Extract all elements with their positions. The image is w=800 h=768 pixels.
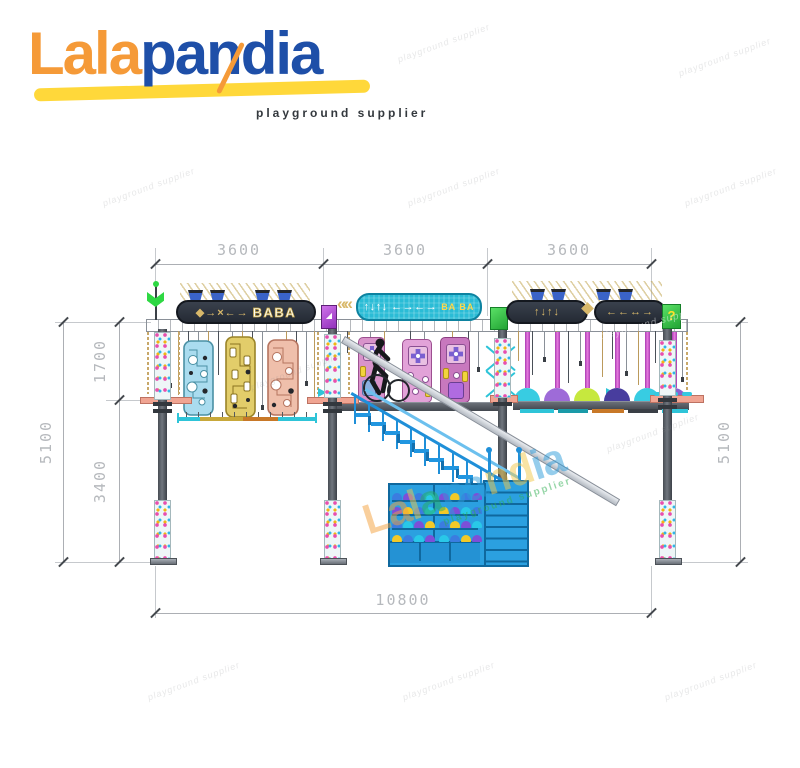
brand-logo: Lalapandia [28,24,321,84]
post-2-padding [324,334,341,398]
dim-label-left-upper: 1700 [92,326,108,396]
connector-endcap [177,413,179,423]
rope [544,331,545,357]
sign-left: ◆→×←→ BABA [176,300,316,324]
pill-decor [462,371,468,382]
rope [638,331,639,385]
bead-rope [686,332,688,394]
sign-right1-arrows-icon: ↑↓↑↓ [534,306,560,318]
post-4-padding-lower [659,500,676,560]
connector-drop [246,412,247,417]
rope [532,331,533,375]
connector-segment [278,417,316,421]
rope [478,331,479,367]
rope [306,331,307,381]
rope [568,331,569,383]
connector-drop [222,412,223,417]
sign-left-label: BABA [253,305,297,320]
helmet-icon [425,535,435,542]
post-flange [323,402,342,406]
stepper-pole [555,332,560,388]
helmet-icon [439,535,449,542]
connector-drop [210,412,211,417]
connector-drop [258,412,259,417]
cross-handle-icon [408,346,428,366]
stepper-pole [615,332,620,388]
helmet-icon [472,535,482,542]
sign-right2-arrows-icon: ←←↔→ [606,306,654,318]
watermark-text: playground supplier [663,660,758,703]
walkway-segment [628,409,658,413]
post-4-padding [659,340,676,396]
connector-drop [270,412,271,417]
logo-text-orange: Lala [28,20,140,87]
climb-panel-gold [225,336,256,418]
watermark-text: playground supplier [101,166,196,209]
shelf-doors [390,541,480,563]
connector-drop [198,412,199,417]
watermark-text: playground supplier [677,36,772,79]
stepper-pole [585,332,590,388]
sign-right-1: ↑↓↑↓ [506,300,588,324]
post-flange [323,409,342,413]
rope [682,331,683,377]
marker-ball-icon [153,281,159,287]
dim-label-span3: 3600 [538,242,600,258]
sign-middle-label: BA BA [441,302,474,312]
watermark-text: playground supplier [683,166,778,209]
logo-text-blue: pandia [140,20,321,87]
dim-line-left-split [119,322,120,562]
watermark-text: playground supplier [605,412,700,455]
connector-segment [243,417,278,421]
dim-line-right [740,322,741,562]
post-baseplate [655,558,682,565]
watermark-text: playground supplier [396,22,491,65]
post-flange [658,398,677,402]
dim-label-right-total: 5100 [716,407,732,477]
rope [218,331,219,375]
stair-baluster [354,394,356,424]
post-flange [153,402,172,406]
connector-drop [234,412,235,417]
rope [655,331,656,363]
watermark-text: playground supplier [401,660,496,703]
rope-weight [579,361,582,366]
sign-middle-arrows-icon: ↑↓↑↓ ←→←→ [364,301,438,313]
dim-label-span2: 3600 [374,242,436,258]
helmet-icon [461,535,471,542]
rope-weight [543,357,546,362]
drawing-sheet: Lalapandia playground supplier 3600 3600… [0,0,800,768]
dim-line-left-total [63,322,64,562]
rope-weight [681,377,684,382]
dim-label-left-total: 5100 [38,407,54,477]
stepper-pole [645,332,650,388]
post-flange [493,402,512,406]
cross-handle-icon [446,344,466,364]
rope [580,331,581,361]
dim-ext-line [55,322,151,323]
connector-endcap [315,413,317,423]
rope-weight [261,405,264,410]
connector-drop [282,412,283,417]
rope [518,331,519,361]
logo-tagline: playground supplier [256,106,428,120]
rope-weight [305,381,308,386]
dim-line-bottom [155,613,652,614]
rope-weight [477,367,480,372]
walkway-segment [520,409,554,413]
post-baseplate [320,558,347,565]
dim-label-bottom-total: 10800 [363,592,443,608]
bead-rope [147,332,149,394]
post-3-padding [494,338,511,398]
post-flange [153,409,172,413]
watermark-text: playground supplier [406,166,501,209]
pink-panel [440,337,470,403]
walkway-segment [558,409,588,413]
sign-middle-chevrons-icon: «« [337,294,350,314]
stepper-pole [525,332,530,388]
dim-ext-line [487,248,488,316]
pill-decor [443,368,449,379]
climb-panel-blue [183,340,214,416]
post-baseplate [150,558,177,565]
connector-drop [294,412,295,417]
post-flange [658,405,677,409]
watermark-text: playground supplier [146,660,241,703]
helmet-icon [461,521,471,528]
door-divider [449,543,451,561]
door-divider [419,543,421,561]
helmet-icon [472,521,482,528]
connector-drop [186,412,187,417]
helmet-icon [450,535,460,542]
connector-drop [306,412,307,417]
walkway-segment [592,409,624,413]
dim-label-left-lower: 3400 [92,446,108,516]
dim-line-top [155,264,652,265]
bead-rope [178,332,180,394]
post-1-padding [154,332,171,400]
rope [262,331,263,405]
rope [626,331,627,371]
post-1-padding-lower [154,500,171,560]
dim-ext-line [55,562,151,563]
connector-segment [178,417,200,421]
cyan-pad [682,392,692,396]
rope-weight [625,371,628,376]
ladder-rail-cap [486,447,492,453]
dot-decor [453,372,460,379]
connector-segment [200,417,243,421]
panel-patch [448,382,464,399]
dim-label-span1: 3600 [208,242,270,258]
sign-left-arrows-icon: ◆→×←→ [196,306,249,319]
purple-cube-icon: ◢ [321,305,337,329]
sign-middle: ↑↓↑↓ ←→←→ BA BA [356,293,482,321]
